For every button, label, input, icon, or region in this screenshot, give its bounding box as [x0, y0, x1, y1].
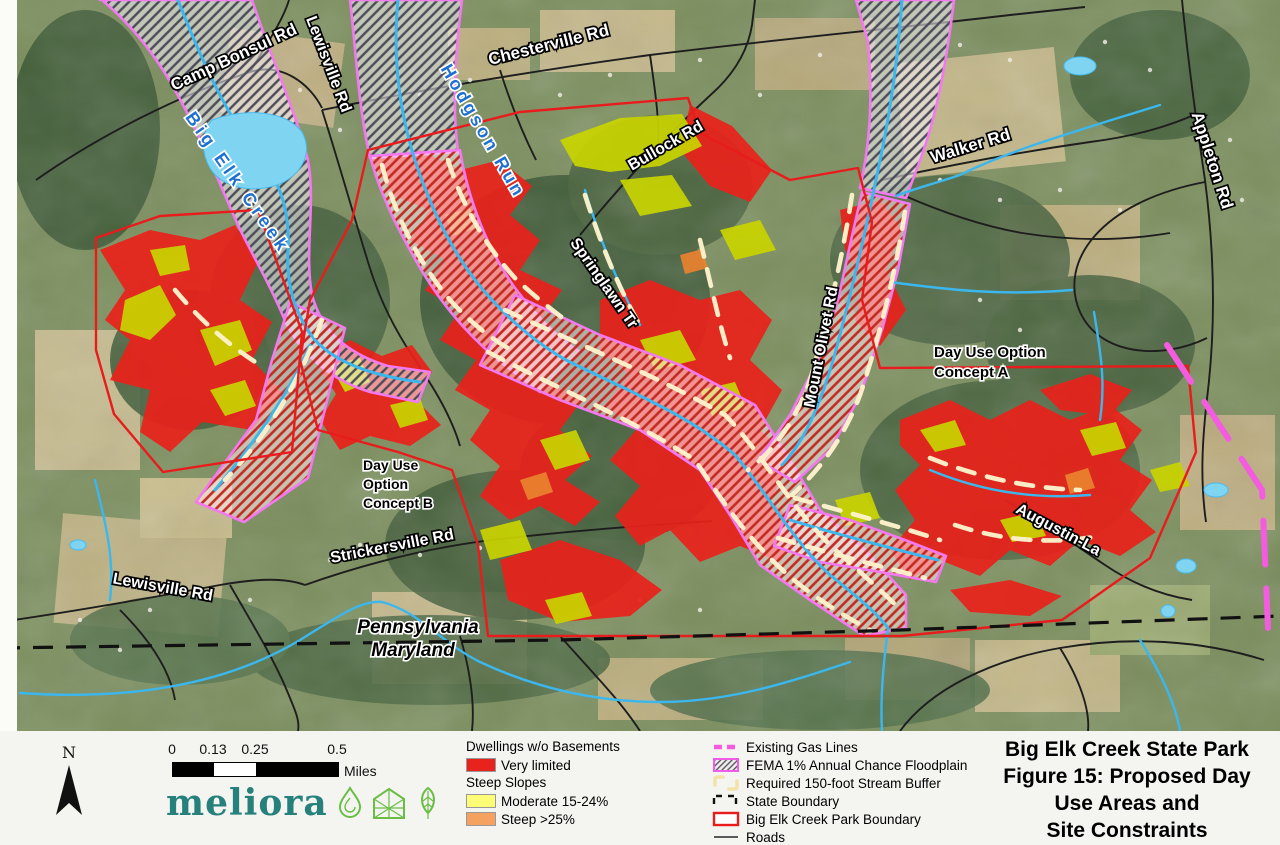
legend-item-gas-lines: Existing Gas Lines	[712, 738, 967, 756]
north-arrow: N	[46, 743, 92, 826]
legend-item-roads: Roads	[712, 828, 967, 845]
legend-linework: Existing Gas Lines FEMA 1% Annual Chance…	[712, 738, 967, 845]
scale-unit-label: Miles	[344, 763, 377, 779]
leaf-icon	[422, 788, 434, 819]
map-area: Camp Bonsul RdLewisville RdChesterville …	[0, 0, 1280, 731]
roads-symbol	[712, 828, 742, 845]
gas-line-symbol	[712, 738, 742, 756]
state-maryland-label: Maryland	[371, 640, 455, 661]
moderate-slope-swatch	[466, 794, 496, 808]
stream-buffer-symbol	[712, 774, 742, 792]
scale-tick-0: 0	[168, 741, 176, 757]
figure-title-line1: Big Elk Creek State Park	[978, 736, 1276, 763]
legend-group-steep-slopes: Steep Slopes	[466, 774, 620, 792]
day-use-b-line3-label: Concept B	[363, 495, 433, 511]
day-use-b-line2-label: Option	[363, 476, 408, 492]
scale-bar-graphic	[172, 762, 339, 777]
day-use-a-line1-label: Day Use Option	[934, 344, 1046, 361]
scale-tick-05: 0.5	[327, 741, 346, 757]
map-edge-strip	[0, 0, 17, 731]
state-pennsylvania-label: Pennsylvania	[357, 617, 479, 638]
legend-item-stream-buffer: Required 150-foot Stream Buffer	[712, 774, 967, 792]
legend-item-park-boundary: Big Elk Creek Park Boundary	[712, 810, 967, 828]
day-use-b-line1-label: Day Use	[363, 457, 418, 473]
legend-item-state-boundary: State Boundary	[712, 792, 967, 810]
day-use-a-line2-label: Concept A	[934, 364, 1009, 381]
aerial-map: Camp Bonsul RdLewisville RdChesterville …	[0, 0, 1280, 731]
legend-item-steep-slope: Steep >25%	[466, 810, 620, 828]
scale-tick-025: 0.25	[241, 741, 268, 757]
north-label: N	[46, 743, 92, 762]
meliora-logo: meliora	[166, 785, 446, 821]
north-arrow-icon	[49, 763, 89, 821]
figure-title-line4: Site Constraints	[978, 817, 1276, 844]
figure-title-line2: Figure 15: Proposed Day	[978, 763, 1276, 790]
legend-constraints: Dwellings w/o Basements Very limited Ste…	[466, 738, 620, 828]
legend-item-moderate-slope: Moderate 15-24%	[466, 792, 620, 810]
figure-title: Big Elk Creek State Park Figure 15: Prop…	[978, 736, 1276, 844]
legend-group-dwellings: Dwellings w/o Basements	[466, 738, 620, 756]
figure-page: Camp Bonsul RdLewisville RdChesterville …	[0, 0, 1280, 845]
scale-tick-013: 0.13	[199, 741, 226, 757]
legend-item-fema-floodplain: FEMA 1% Annual Chance Floodplain	[712, 756, 967, 774]
meliora-logo-text: meliora	[166, 785, 328, 821]
figure-title-line3: Use Areas and	[978, 790, 1276, 817]
park-boundary-symbol	[712, 810, 742, 828]
map-footer: N 0 0.13 0.25 0.5 Miles meliora	[0, 731, 1280, 845]
meliora-logo-icons	[336, 785, 446, 821]
water-drop-icon	[340, 788, 360, 817]
floodplain-symbol	[712, 756, 742, 774]
legend-item-very-limited: Very limited	[466, 756, 620, 774]
steep-slope-swatch	[466, 812, 496, 826]
very-limited-swatch	[466, 758, 496, 772]
greenhouse-icon	[374, 789, 404, 818]
state-boundary-symbol	[712, 792, 742, 810]
